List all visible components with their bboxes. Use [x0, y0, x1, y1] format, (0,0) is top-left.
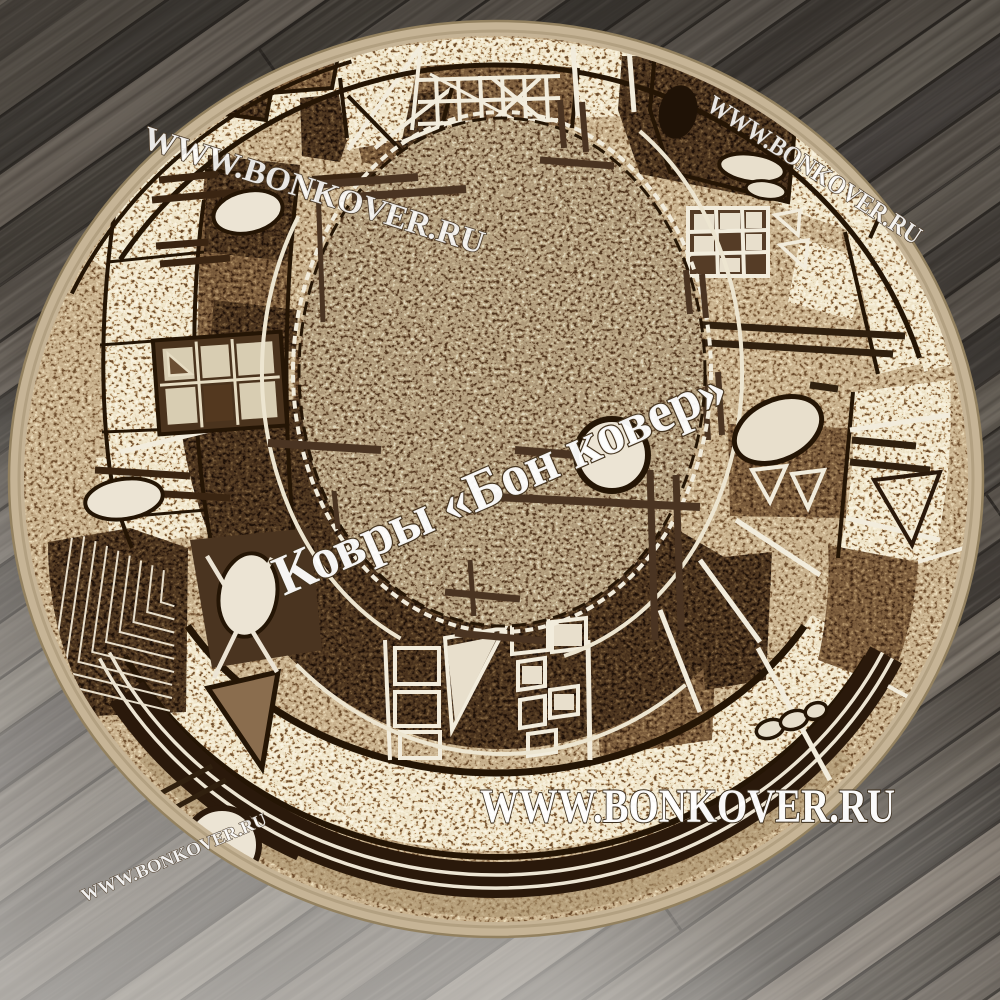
svg-text:WWW.BONKOVER.RU: WWW.BONKOVER.RU — [480, 780, 895, 833]
